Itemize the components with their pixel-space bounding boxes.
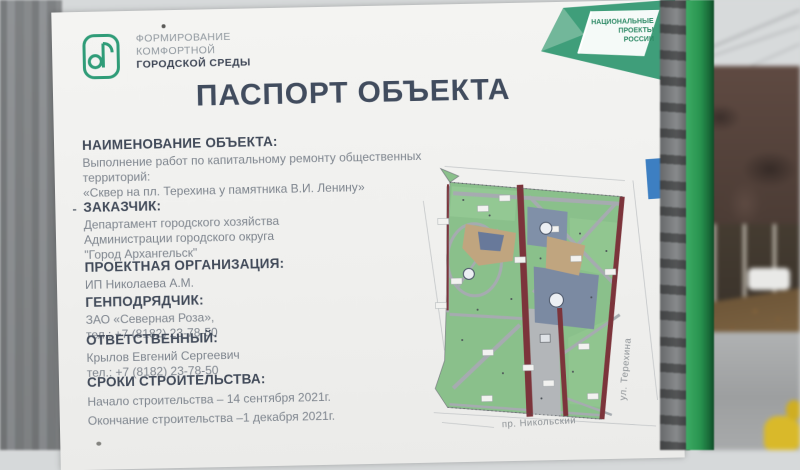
fkgs-logo-text: ФОРМИРОВАНИЕ КОМФОРТНОЙ ГОРОДСКОЙ СРЕДЫ xyxy=(136,29,337,72)
blurred-buildings xyxy=(700,66,800,238)
section-design-organization: ПРОЕКТНАЯ ОРГАНИЗАЦИЯ: ИП Николаева А.М. xyxy=(84,253,437,293)
fkgs-line3: ГОРОДСКОЙ СРЕДЫ xyxy=(136,55,336,72)
park-north-wedge xyxy=(441,168,459,182)
yellow-object-small xyxy=(786,400,800,420)
photo-of-construction-info-board: { "board": { "program_logo": { "line1": … xyxy=(0,0,800,450)
section-object-name: НАИМЕНОВАНИЕ ОБЪЕКТА: Выполнение работ п… xyxy=(82,131,435,201)
page-title: ПАСПОРТ ОБЪЕКТА xyxy=(143,72,564,115)
zone-blue-lower xyxy=(534,265,600,330)
lawn-patch xyxy=(449,185,518,222)
green-fence-post xyxy=(686,0,714,450)
np-logo-line3: РОССИИ xyxy=(624,36,654,44)
np-logo-line1: НАЦИОНАЛЬНЫЕ xyxy=(591,18,654,26)
street-background xyxy=(700,0,800,450)
dash-mark: - xyxy=(72,201,77,216)
mounting-bolt-bottom xyxy=(96,442,101,446)
section-customer: - ЗАКАЗЧИК: Департамент городского хозяй… xyxy=(83,193,436,263)
parked-car xyxy=(748,268,790,290)
monument-marker xyxy=(540,334,550,342)
street-label-right: ул. Терехина xyxy=(618,337,634,401)
site-plan-map: пр. Никольский ул. Терехина xyxy=(418,156,668,441)
national-projects-logo: НАЦИОНАЛЬНЫЕ ПРОЕКТЫ РОССИИ xyxy=(567,2,668,66)
np-logo-line2: ПРОЕКТЫ xyxy=(618,27,654,35)
section-construction-dates: СРОКИ СТРОИТЕЛЬСТВА: Начало строительств… xyxy=(87,368,440,431)
object-passport-board: НАЦИОНАЛЬНЫЕ ПРОЕКТЫ РОССИИ ФОРМИРОВАНИЕ… xyxy=(51,0,684,470)
yellow-object xyxy=(764,416,800,450)
fkgs-logo-icon xyxy=(76,29,129,86)
mounting-bolt-top xyxy=(162,24,166,28)
